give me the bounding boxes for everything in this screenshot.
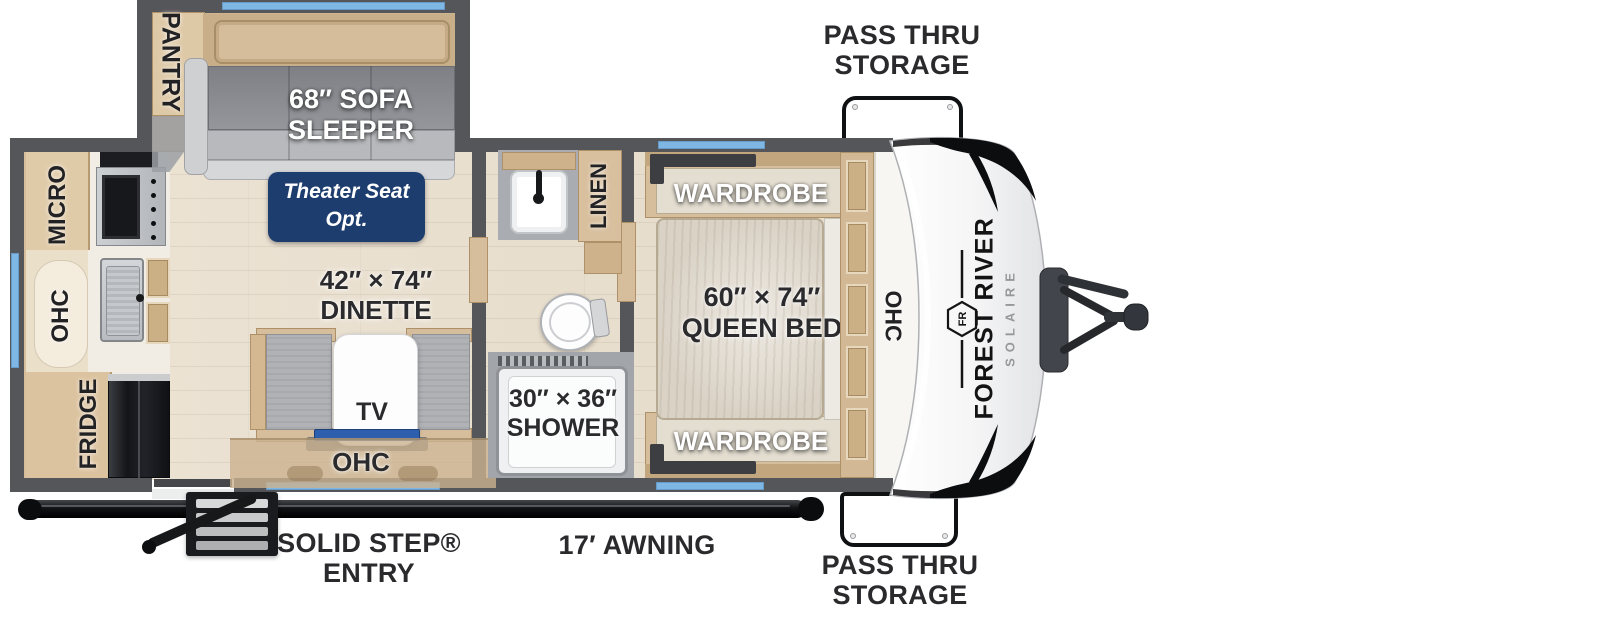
hitch-coupler-icon: [1124, 304, 1148, 330]
handrail-end-knob: [142, 540, 156, 554]
brand-maker-label: FOREST RIVER: [971, 217, 1000, 420]
floorplan-canvas: PASS THRU STORAGE PASS THRU STORAGE SOLI…: [0, 0, 1600, 625]
logo-monogram: FR: [957, 312, 969, 327]
brand-model-label: SOLAIRE: [1003, 267, 1018, 367]
